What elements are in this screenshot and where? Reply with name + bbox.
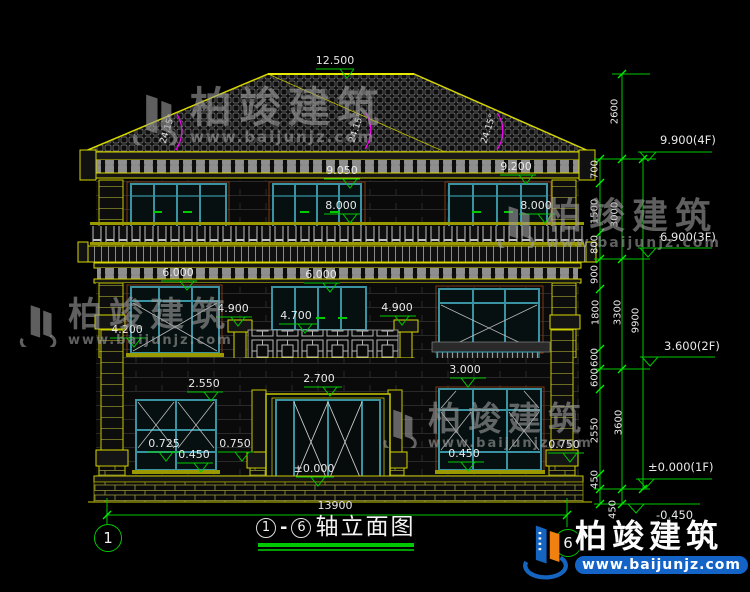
cad-elevation-sheet: 12.500 9.050 9.200 8.000 8.000 6.000 6.0… [0, 0, 750, 592]
title-underline [258, 543, 414, 547]
dim-chain-label: 2550 [590, 409, 601, 453]
brand-logo-icon [522, 512, 569, 582]
elevation-drawing [0, 0, 750, 592]
dim-chain-label: 600 [590, 356, 601, 400]
elevation-label-0450-r: 0.450 [440, 447, 488, 460]
elevation-label-4700: 4.700 [272, 309, 320, 322]
floor-mark-4f: 9.900(4F) [660, 133, 716, 147]
elevation-label-0000: ±0.000 [290, 462, 338, 475]
elevation-label-8000-c: 8.000 [317, 199, 365, 212]
elevation-label-4900-l: 4.900 [209, 302, 257, 315]
title-dash: - [280, 519, 287, 537]
axis-bubble-1: 1 [94, 524, 122, 552]
elevation-label-8000-r: 8.000 [512, 199, 560, 212]
floor-mark-1f: ±0.000(1F) [648, 460, 713, 474]
dim-chain-label: 1800 [591, 291, 602, 335]
elevation-label-6000-c: 6.000 [297, 268, 345, 281]
title-underline-2 [258, 549, 414, 551]
elevation-label-3000: 3.000 [441, 363, 489, 376]
elevation-label-2700: 2.700 [295, 372, 343, 385]
title-text: 轴立面图 [315, 516, 415, 539]
brand-name: 柏竣建筑 [575, 520, 723, 554]
elevation-label-2550: 2.550 [180, 377, 228, 390]
elevation-label-9050: 9.050 [318, 164, 366, 177]
elevation-label-0750-l: 0.750 [211, 437, 259, 450]
elevation-label-0750-r: 0.750 [540, 438, 588, 451]
dim-chain-label: 450 [590, 458, 601, 502]
elevation-label-ridge: 12.500 [311, 54, 359, 67]
brand-url: www.baijunjz.com [575, 556, 748, 574]
dim-chain-group-label: 3600 [614, 401, 625, 445]
drawing-title: 1 - 6 轴立面图 [256, 516, 415, 539]
elevation-label-4200: 4.200 [103, 323, 151, 336]
floor-mark-2f: 3.600(2F) [664, 339, 720, 353]
elevation-label-6000-l: 6.000 [154, 266, 202, 279]
dim-chain-total-label: 9900 [631, 299, 642, 343]
dim-chain-label: 2600 [610, 90, 621, 134]
axis-circle-end: 6 [291, 518, 311, 538]
axis-circle-start: 1 [256, 518, 276, 538]
floor-mark-3f: 6.900(3F) [660, 230, 716, 244]
overall-width-label: 13900 [311, 499, 359, 512]
brand-logo: 柏竣建筑 www.baijunjz.com [522, 512, 748, 582]
elevation-label-9200: 9.200 [492, 160, 540, 173]
elevation-label-4900-r: 4.900 [373, 301, 421, 314]
dim-chain-label: 700 [590, 148, 601, 192]
dim-chain-group-label: 3300 [613, 291, 624, 335]
dim-chain-group-label: 3000 [610, 193, 621, 237]
